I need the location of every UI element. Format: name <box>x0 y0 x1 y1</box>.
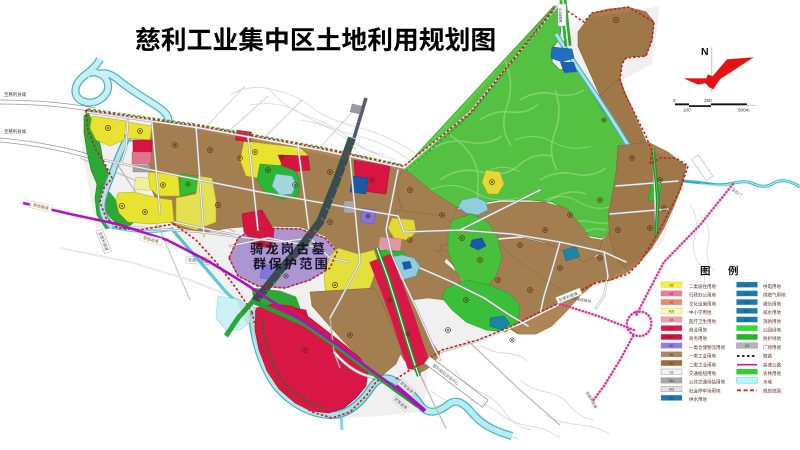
svg-text:U31: U31 <box>744 318 750 322</box>
svg-text:100: 100 <box>683 108 691 113</box>
svg-text:供燃气用地: 供燃气用地 <box>763 292 786 299</box>
svg-text:W1: W1 <box>669 344 674 348</box>
svg-text:二类工业用地: 二类工业用地 <box>689 361 716 368</box>
svg-text:U12: U12 <box>744 283 750 287</box>
svg-text:铁路: 铁路 <box>763 353 772 360</box>
svg-text:0: 0 <box>673 98 676 103</box>
svg-text:水域: 水域 <box>763 379 772 385</box>
svg-text:供水用地: 供水用地 <box>689 396 707 403</box>
svg-text:B2: B2 <box>670 336 674 340</box>
svg-text:医疗卫生用地: 医疗卫生用地 <box>689 318 716 325</box>
svg-text:商务用地: 商务用地 <box>689 335 707 342</box>
svg-text:U11: U11 <box>669 396 675 400</box>
svg-text:文化设施用地: 文化设施用地 <box>689 300 716 307</box>
svg-text:250: 250 <box>704 98 712 103</box>
svg-text:广场用地: 广场用地 <box>763 344 781 351</box>
svg-text:A5: A5 <box>670 318 674 322</box>
svg-text:高速公路: 高速公路 <box>763 361 781 368</box>
svg-text:500m: 500m <box>738 108 750 113</box>
svg-text:S42: S42 <box>669 388 675 392</box>
svg-text:交通枢纽用地: 交通枢纽用地 <box>689 370 716 377</box>
svg-text:A1: A1 <box>670 292 674 296</box>
svg-text:一类仓储物流用地: 一类仓储物流用地 <box>689 344 725 351</box>
svg-text:M2: M2 <box>669 362 674 366</box>
svg-text:公共交通场站用地: 公共交通场站用地 <box>689 379 725 386</box>
svg-text:G3: G3 <box>745 344 749 348</box>
svg-text:社会停车场用地: 社会停车场用地 <box>689 387 721 394</box>
svg-text:U21: U21 <box>744 309 750 313</box>
svg-text:消防用地: 消防用地 <box>763 318 781 325</box>
svg-text:规划范围: 规划范围 <box>763 387 781 394</box>
svg-text:B1: B1 <box>670 327 674 331</box>
svg-text:M1: M1 <box>669 353 674 357</box>
svg-text:中小学用地: 中小学用地 <box>689 309 712 316</box>
svg-text:A2: A2 <box>670 301 674 305</box>
svg-text:商业用地: 商业用地 <box>689 327 707 334</box>
svg-text:至慈利县城: 至慈利县城 <box>4 128 27 135</box>
svg-text:至慈利县城: 至慈利县城 <box>4 91 27 98</box>
svg-text:R2: R2 <box>669 283 673 287</box>
svg-text:防护绿地: 防护绿地 <box>763 335 781 342</box>
svg-text:农林用地: 农林用地 <box>763 370 781 377</box>
svg-text:排水用地: 排水用地 <box>763 309 781 316</box>
svg-text:S3: S3 <box>670 370 674 374</box>
svg-text:S41: S41 <box>669 379 675 383</box>
svg-text:公园绿地: 公园绿地 <box>763 327 781 334</box>
svg-text:通信用地: 通信用地 <box>763 300 781 307</box>
svg-text:行政办公用地: 行政办公用地 <box>689 292 716 299</box>
svg-text:供电用地: 供电用地 <box>763 283 781 290</box>
svg-text:N: N <box>701 46 709 58</box>
svg-text:二类居住用地: 二类居住用地 <box>689 283 716 290</box>
svg-text:A33: A33 <box>669 309 675 313</box>
svg-text:U16: U16 <box>744 301 750 305</box>
svg-text:一类工业用地: 一类工业用地 <box>689 353 716 360</box>
svg-text:U13: U13 <box>744 292 750 296</box>
